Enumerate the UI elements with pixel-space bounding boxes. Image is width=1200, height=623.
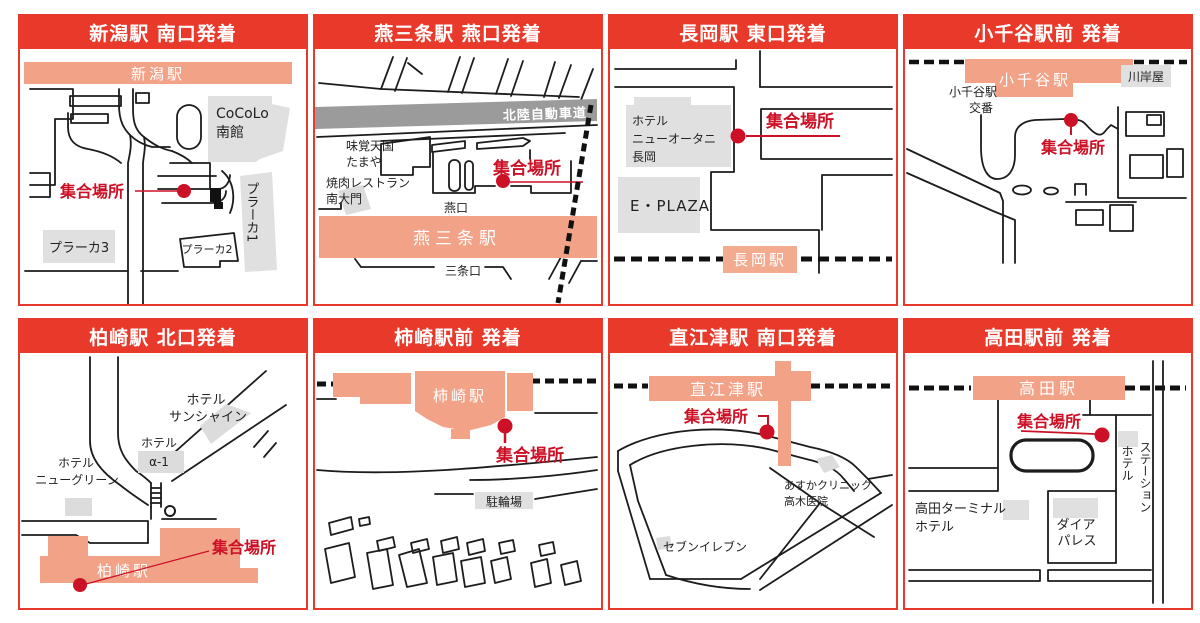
map-kakizaki: 柿崎駅 集合場所 駐輪場 bbox=[315, 353, 601, 608]
building-label: 味覚天国 bbox=[346, 139, 394, 153]
station-label: 高田駅 bbox=[1019, 379, 1079, 398]
exit-label: 燕口 bbox=[444, 201, 468, 215]
building-label: たまや bbox=[346, 155, 382, 169]
building-label: 長岡 bbox=[632, 150, 656, 164]
station-label: 柏崎駅 bbox=[97, 562, 151, 580]
building-gray bbox=[1003, 500, 1029, 520]
station-building bbox=[333, 373, 411, 404]
roads bbox=[618, 429, 892, 590]
map-panel-ojiya: 小千谷駅前 発着 小千谷駅 小千谷駅 交番 川岸屋 集合場所 bbox=[903, 14, 1193, 306]
map-nagaoka: ホテル ニューオータニ 長岡 E・PLAZA 集合場所 長岡駅 bbox=[610, 49, 896, 304]
station-label: 直江津駅 bbox=[690, 380, 766, 399]
bus-stop-mark bbox=[214, 202, 223, 209]
building-label: プラーカ1 bbox=[244, 182, 259, 242]
meeting-point-marker bbox=[1095, 428, 1110, 443]
meeting-point-label: 集合場所 bbox=[59, 182, 124, 201]
meeting-point-label: 集合場所 bbox=[683, 407, 748, 426]
building-label: セブンイレブン bbox=[663, 539, 747, 554]
station-building bbox=[507, 373, 533, 411]
building-label: ステーション bbox=[1138, 441, 1152, 513]
police-box-label: 小千谷駅 bbox=[949, 85, 997, 99]
building-gray bbox=[816, 455, 840, 473]
map-panel-kakizaki: 柿崎駅前 発着 bbox=[313, 318, 603, 610]
building-label: ホテル bbox=[186, 393, 225, 408]
panel-title: 高田駅前 発着 bbox=[905, 320, 1191, 353]
building-label: ホテル bbox=[141, 436, 177, 450]
building-label: E・PLAZA bbox=[630, 197, 710, 215]
station-label: 小千谷駅 bbox=[999, 71, 1071, 89]
panel-title: 燕三条駅 燕口発着 bbox=[315, 16, 601, 49]
building-label: 南大門 bbox=[326, 191, 362, 206]
building-label: パレス bbox=[1057, 534, 1096, 549]
building-label: ニューオータニ bbox=[632, 132, 716, 146]
building-gray bbox=[65, 498, 92, 516]
building-label: ニューグリーン bbox=[35, 473, 118, 487]
expressway-label: 北陸自動車道 bbox=[503, 105, 588, 124]
meeting-point-marker bbox=[177, 184, 191, 198]
building-label: ホテル bbox=[58, 456, 94, 470]
meeting-point-marker bbox=[73, 578, 87, 592]
map-ojiya: 小千谷駅 小千谷駅 交番 川岸屋 集合場所 bbox=[905, 49, 1191, 304]
building-label: ダイア bbox=[1056, 518, 1095, 533]
station-label: 柿崎駅 bbox=[433, 387, 487, 405]
building-label: α-1 bbox=[149, 455, 169, 469]
roads bbox=[907, 107, 1186, 263]
building-label: 南館 bbox=[216, 124, 244, 141]
meeting-point-marker bbox=[760, 425, 775, 440]
panel-title: 小千谷駅前 発着 bbox=[905, 16, 1191, 49]
building-label: 高木医院 bbox=[784, 494, 828, 508]
building-gray bbox=[1053, 498, 1098, 518]
building-label: あすかクリニック bbox=[784, 479, 872, 492]
map-panel-nagaoka: 長岡駅 東口発着 ホテル ニューオータニ 長岡 E・PLAZA 集合場所 長岡駅 bbox=[608, 14, 898, 306]
building-label: CoCoLo bbox=[216, 106, 269, 122]
panel-title: 柏崎駅 北口発着 bbox=[20, 320, 306, 353]
meeting-point-marker bbox=[731, 129, 746, 144]
map-kashiwazaki: ホテル サンシャイン ホテル α-1 ホテル ニューグリーン 柏崎駅 集合場所 bbox=[20, 353, 306, 608]
panel-title: 直江津駅 南口発着 bbox=[610, 320, 896, 353]
building-label: ホテル bbox=[1120, 445, 1134, 481]
meeting-point-leader bbox=[1021, 431, 1095, 434]
building-label: 高田ターミナル bbox=[915, 501, 1006, 517]
meeting-point-label: 集合場所 bbox=[765, 111, 834, 132]
station-label: 長岡駅 bbox=[733, 251, 787, 269]
meeting-point-label: 集合場所 bbox=[211, 538, 276, 557]
meeting-point-label: 集合場所 bbox=[1040, 138, 1105, 157]
map-niigata: 新潟駅 CoCoLo 南館 プラーカ1 bbox=[20, 49, 306, 304]
map-takada: 高田駅 集合場所 ステーション ホテル 高田ターミナル ホテル ダイア パレス bbox=[905, 353, 1191, 608]
bus-stop-mark bbox=[210, 188, 221, 202]
meeting-point-marker bbox=[1064, 113, 1078, 127]
building-label: プラーカ2 bbox=[182, 243, 233, 256]
building-label: ホテル bbox=[632, 114, 668, 128]
exit-label: 三条口 bbox=[445, 264, 481, 278]
panel-title: 長岡駅 東口発着 bbox=[610, 16, 896, 49]
panel-title: 新潟駅 南口発着 bbox=[20, 16, 306, 49]
roads bbox=[25, 89, 238, 304]
map-tsubame-sanjo: 北陸自動車道 味覚天国 たまや 焼肉レストラン 南大門 集合場所 燕口 燕三条駅… bbox=[315, 49, 601, 304]
map-panel-niigata: 新潟駅 南口発着 新潟駅 CoCoLo 南館 bbox=[18, 14, 308, 306]
building-label: 駐輪場 bbox=[486, 494, 522, 509]
map-panel-tsubame-sanjo: 燕三条駅 燕口発着 北陸自動車道 味覚天国 bbox=[313, 14, 603, 306]
building-label: 焼肉レストラン bbox=[326, 176, 410, 190]
map-naoetsu: 直江津駅 集合場所 あすかクリニック 高木医院 セブンイレブン bbox=[610, 353, 896, 608]
roads bbox=[22, 357, 286, 543]
meeting-point-label: 集合場所 bbox=[492, 158, 561, 179]
map-panel-takada: 高田駅前 発着 高田駅 集合場所 ステーション ホテル 高田ターミナル ホテル … bbox=[903, 318, 1193, 610]
station-building bbox=[451, 429, 470, 439]
panel-title: 柿崎駅前 発着 bbox=[315, 320, 601, 353]
station-label: 新潟駅 bbox=[131, 65, 185, 83]
building-label: ホテル bbox=[915, 520, 954, 535]
meeting-point-marker bbox=[498, 419, 513, 434]
meeting-point-label: 集合場所 bbox=[1016, 412, 1081, 431]
station-label: 燕三条駅 bbox=[413, 229, 501, 249]
map-panel-kashiwazaki: 柏崎駅 北口発着 ホテル サンシャイン ホテル α-1 ホテル ニューグリーン … bbox=[18, 318, 308, 610]
map-panel-naoetsu: 直江津駅 南口発着 直江津駅 集合場所 あすかクリニック 高木医院 セブンイレブ… bbox=[608, 318, 898, 610]
meeting-point-leader bbox=[758, 416, 768, 425]
building-label: 川岸屋 bbox=[1128, 70, 1164, 84]
meeting-point-label: 集合場所 bbox=[495, 445, 564, 466]
building-label: サンシャイン bbox=[169, 410, 247, 425]
police-box-label: 交番 bbox=[969, 100, 993, 115]
building-label: プラーカ3 bbox=[49, 241, 109, 256]
